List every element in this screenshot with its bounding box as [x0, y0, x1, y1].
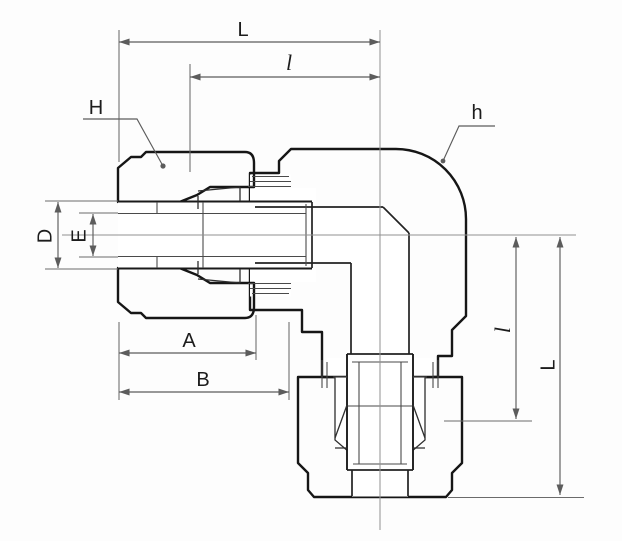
callout-h: h: [441, 102, 495, 163]
dim-l-horizontal: l: [190, 50, 380, 77]
label-A: A: [182, 330, 196, 352]
leader-h-dot: [441, 159, 446, 164]
thread-zone-bottom-right: [413, 358, 433, 377]
leader-h: [443, 126, 495, 161]
label-H: H: [89, 97, 103, 119]
elbow-fitting-section-drawing: L l H h D E A B l L: [0, 0, 622, 541]
dim-A: A: [119, 330, 256, 353]
label-B: B: [196, 369, 209, 391]
left-nut-lower-half: [118, 261, 254, 318]
label-h: h: [471, 102, 482, 124]
bore-channel: [316, 207, 409, 356]
centerlines: [62, 30, 576, 530]
label-D: D: [34, 229, 56, 243]
label-L-right: L: [537, 359, 559, 370]
leader-H: [83, 119, 163, 166]
dim-D: D: [34, 202, 58, 268]
left-nut-upper-half: [118, 152, 254, 209]
dim-l-vertical: l: [490, 237, 516, 419]
dim-L-horizontal: L: [119, 19, 380, 42]
thread-zone-bottom-left: [327, 358, 347, 377]
dim-B: B: [119, 369, 289, 392]
callout-H: H: [83, 97, 166, 169]
label-E: E: [68, 229, 90, 242]
thread-zone-left-bottom: [250, 283, 291, 297]
dim-E: E: [68, 214, 93, 256]
dim-L-vertical: L: [537, 237, 560, 495]
leader-H-dot: [160, 163, 165, 168]
label-l-right: l: [490, 327, 515, 333]
label-l-top: l: [286, 50, 292, 75]
label-L-top: L: [237, 19, 248, 41]
technical-drawing-canvas: L l H h D E A B l L: [0, 0, 622, 541]
